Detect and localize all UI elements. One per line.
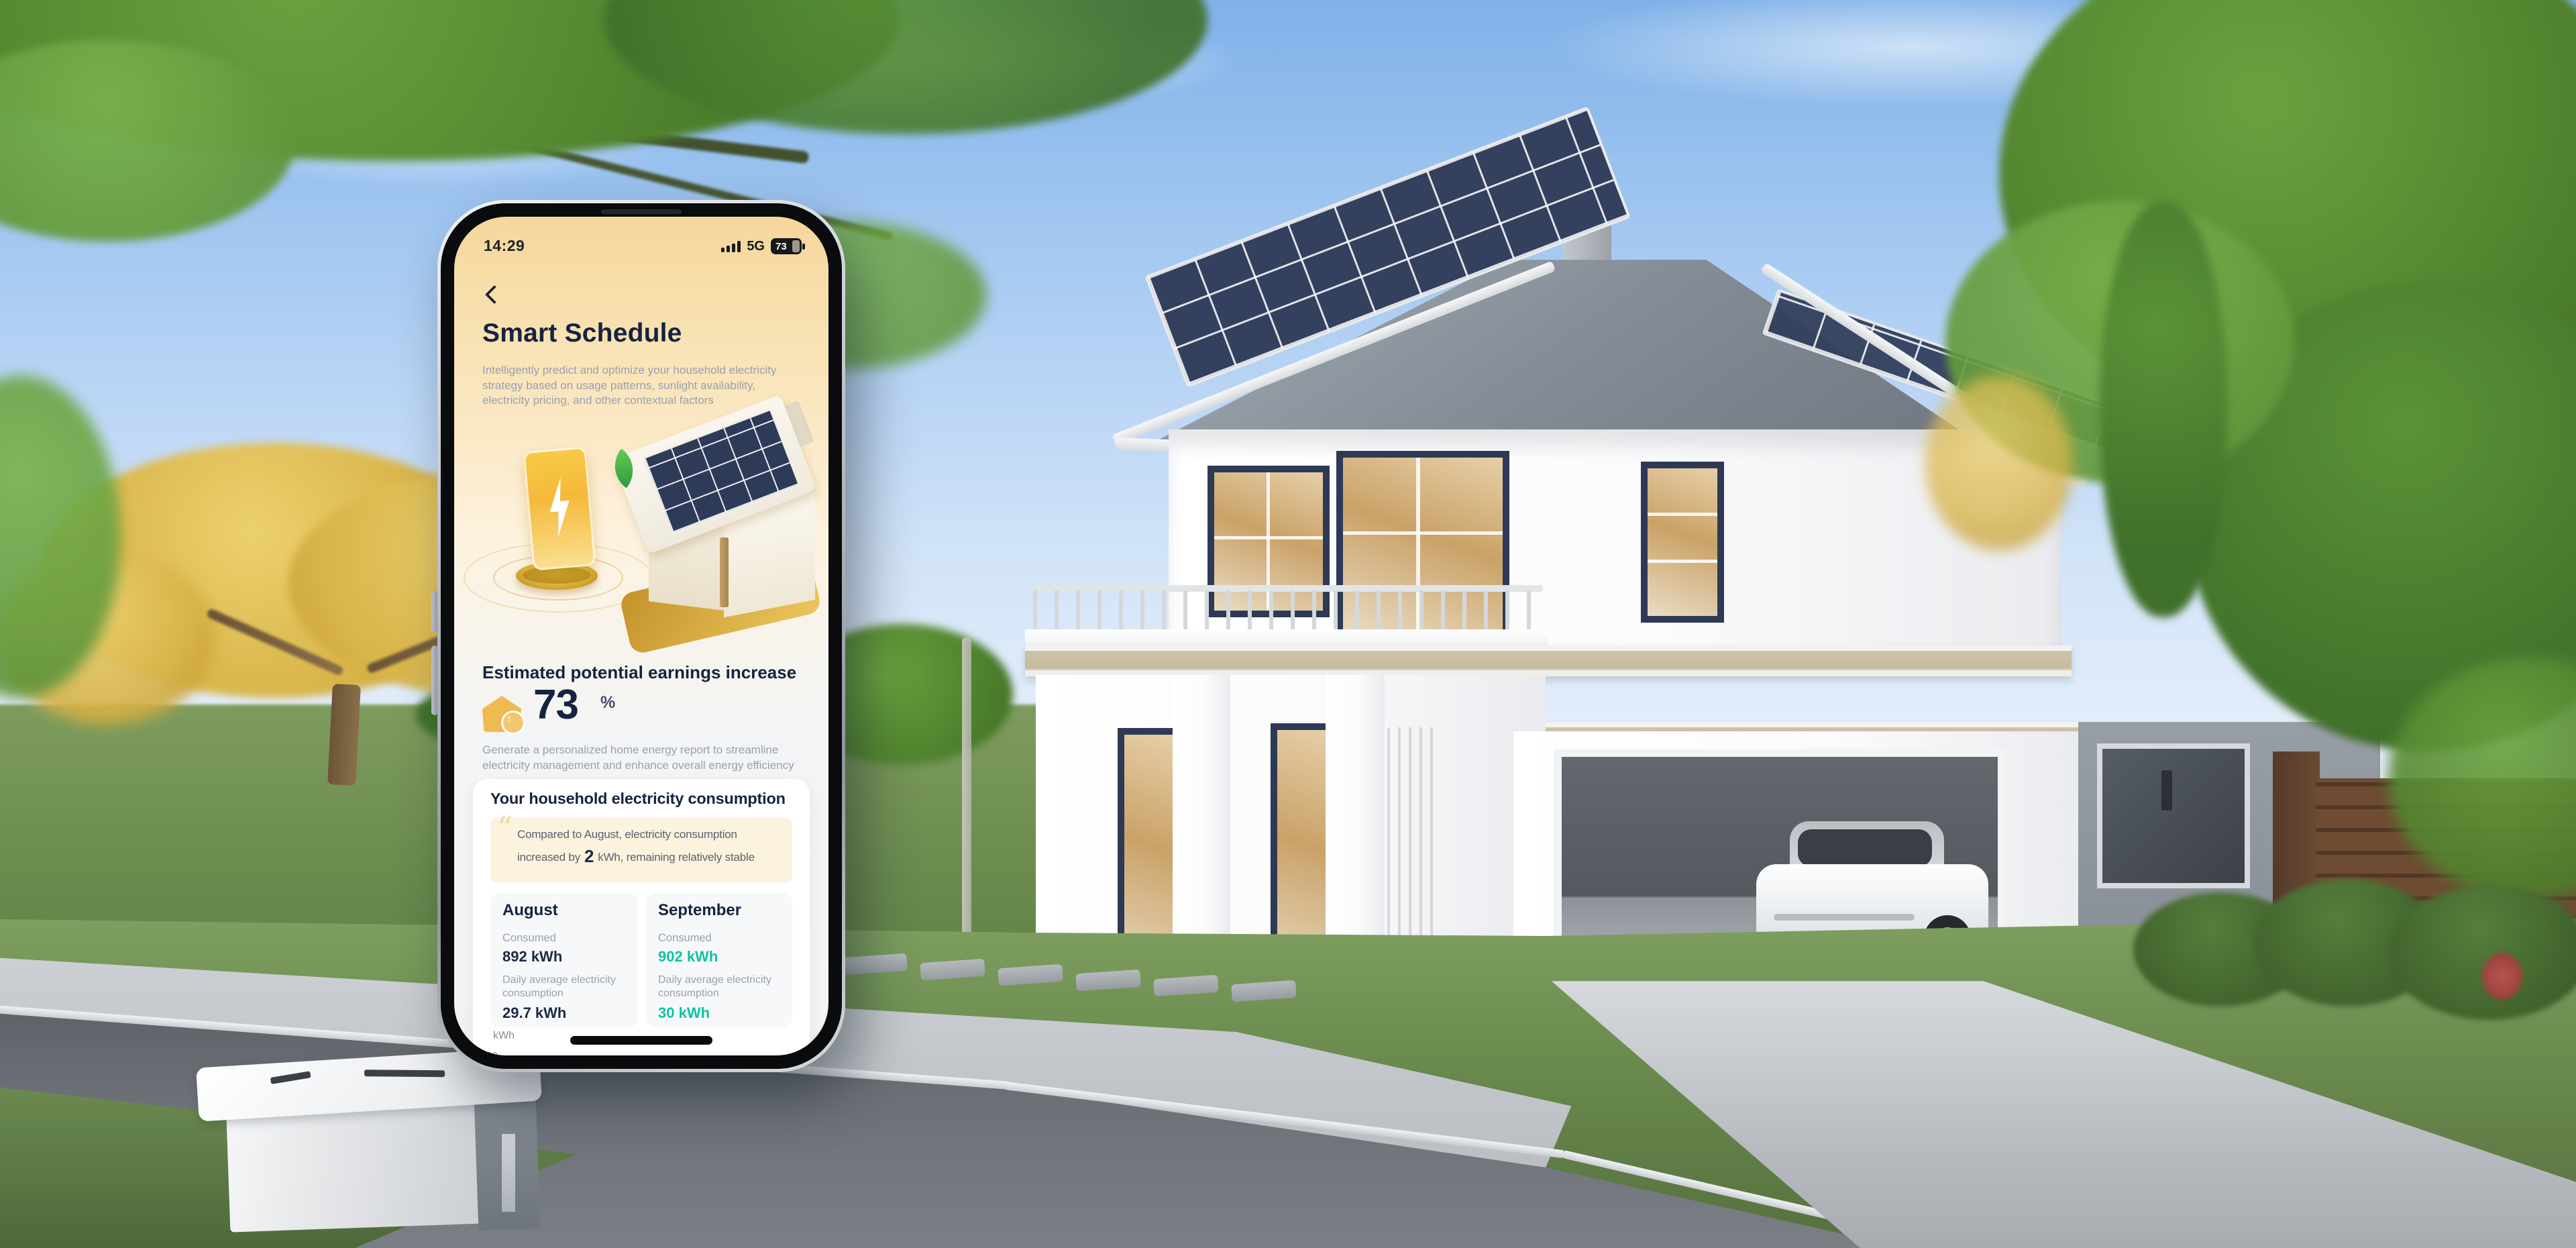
earnings-label: Estimated potential earnings increase [482, 662, 796, 683]
quote-icon: “ [497, 813, 513, 843]
chevron-left-icon [485, 285, 504, 304]
lightning-bolt-icon [541, 476, 577, 538]
report-note: Generate a personalized home energy repo… [482, 743, 800, 774]
up-arrow-glyph: ↑ [506, 713, 513, 726]
battery-nub [802, 244, 805, 250]
earnings-row: ↑ 73 % [482, 690, 800, 739]
phone-bezel: 14:29 5G 73 Smart Schedule In [441, 203, 842, 1069]
conifer-tree [2100, 201, 2227, 617]
comparison-note: “ Compared to August, electricity consum… [490, 818, 792, 882]
car-windshield [1798, 829, 1932, 867]
speaker-slit [601, 209, 682, 214]
car-grille [1774, 914, 1915, 921]
page-description: Intelligently predict and optimize your … [482, 363, 800, 409]
month-card-august: August Consumed 892 kWh Daily average el… [490, 893, 638, 1027]
earnings-unit: % [600, 693, 615, 713]
consumed-label: Consumed [502, 932, 556, 945]
status-bar: 14:29 5G 73 [454, 236, 828, 262]
home-indicator[interactable] [570, 1036, 712, 1045]
battery-icon: 73 [771, 238, 802, 254]
consumed-value: 902 kWh [658, 948, 718, 966]
upper-window-right [1641, 462, 1724, 623]
consumed-label: Consumed [658, 932, 712, 945]
consumed-value: 892 kWh [502, 948, 562, 966]
flower-bush [2482, 953, 2522, 1000]
hedge [2388, 886, 2576, 1020]
network-label: 5G [747, 239, 765, 254]
battery-fill [792, 240, 800, 252]
scene: 14:29 5G 73 Smart Schedule In [0, 0, 2576, 1248]
energy-illustration [454, 410, 828, 656]
chart-tick-60: 60 [486, 1050, 498, 1055]
note-value: 2 [584, 846, 594, 866]
consumption-card: Your household electricity consumption “… [473, 779, 810, 1055]
comparison-note-text: Compared to August, electricity consumpt… [517, 826, 786, 870]
house-up-arrow-icon: ↑ [482, 696, 521, 732]
chart-unit-label: kWh [493, 1030, 515, 1042]
card-title: Your household electricity consumption [490, 790, 786, 808]
month-name: September [658, 901, 741, 920]
month-name: August [502, 901, 558, 920]
house-door [720, 537, 729, 607]
daily-value: 30 kWh [658, 1004, 710, 1022]
daily-label: Daily average electricity consumption [502, 974, 627, 1000]
side-window [2097, 743, 2250, 888]
earnings-value: 73 [533, 681, 578, 729]
wall-lamp [2161, 770, 2172, 811]
energy-card [523, 446, 596, 571]
status-time: 14:29 [484, 237, 525, 255]
daily-label: Daily average electricity consumption [658, 974, 783, 1000]
signal-icon [721, 240, 741, 252]
phone: 14:29 5G 73 Smart Schedule In [437, 200, 845, 1072]
trim-band-main [1025, 645, 2072, 676]
back-button[interactable] [482, 285, 502, 305]
phone-screen: 14:29 5G 73 Smart Schedule In [454, 217, 828, 1055]
yellow-shrub [1925, 376, 2073, 550]
daily-value: 29.7 kWh [502, 1004, 566, 1022]
solar-house-illustration [619, 406, 828, 656]
month-card-september: September Consumed 902 kWh Daily average… [646, 893, 792, 1027]
status-icons: 5G 73 [721, 238, 802, 254]
page-title: Smart Schedule [482, 319, 682, 348]
utility-box-vent [502, 1134, 515, 1212]
battery-percent: 73 [775, 241, 787, 252]
